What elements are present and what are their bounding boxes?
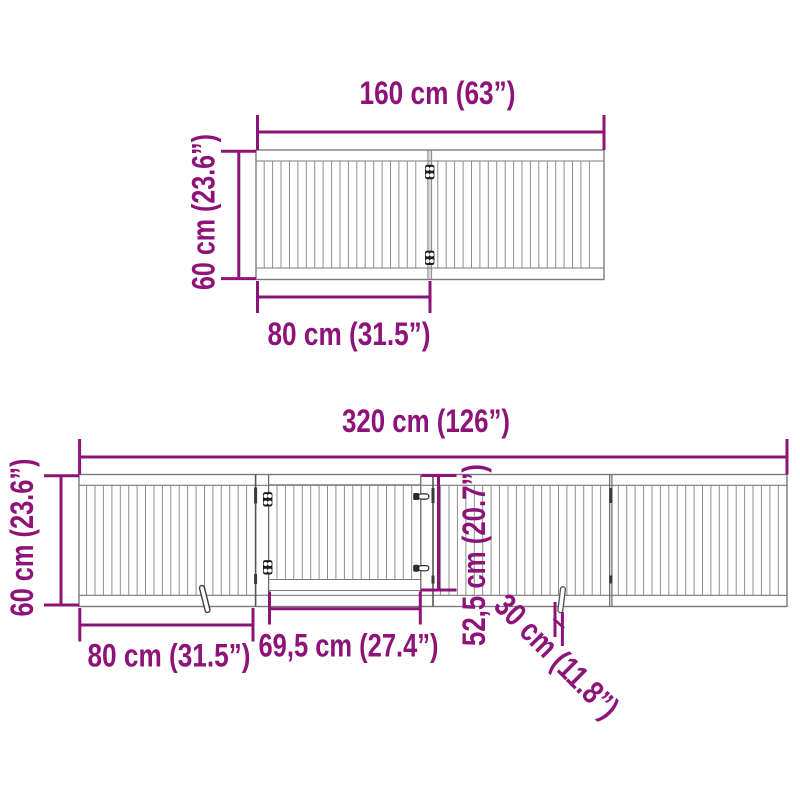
svg-text:69,5 cm (27.4”): 69,5 cm (27.4”) [259, 628, 439, 664]
svg-text:160 cm (63”): 160 cm (63”) [360, 75, 516, 111]
svg-text:80 cm (31.5”): 80 cm (31.5”) [268, 316, 431, 352]
svg-text:320 cm (126”): 320 cm (126”) [342, 403, 510, 439]
svg-text:60 cm (23.6”): 60 cm (23.6”) [186, 134, 222, 290]
svg-text:80 cm (31.5”): 80 cm (31.5”) [88, 638, 251, 674]
svg-text:52,5 cm (20.7”): 52,5 cm (20.7”) [456, 464, 492, 646]
svg-text:60 cm (23.6”): 60 cm (23.6”) [4, 459, 40, 617]
